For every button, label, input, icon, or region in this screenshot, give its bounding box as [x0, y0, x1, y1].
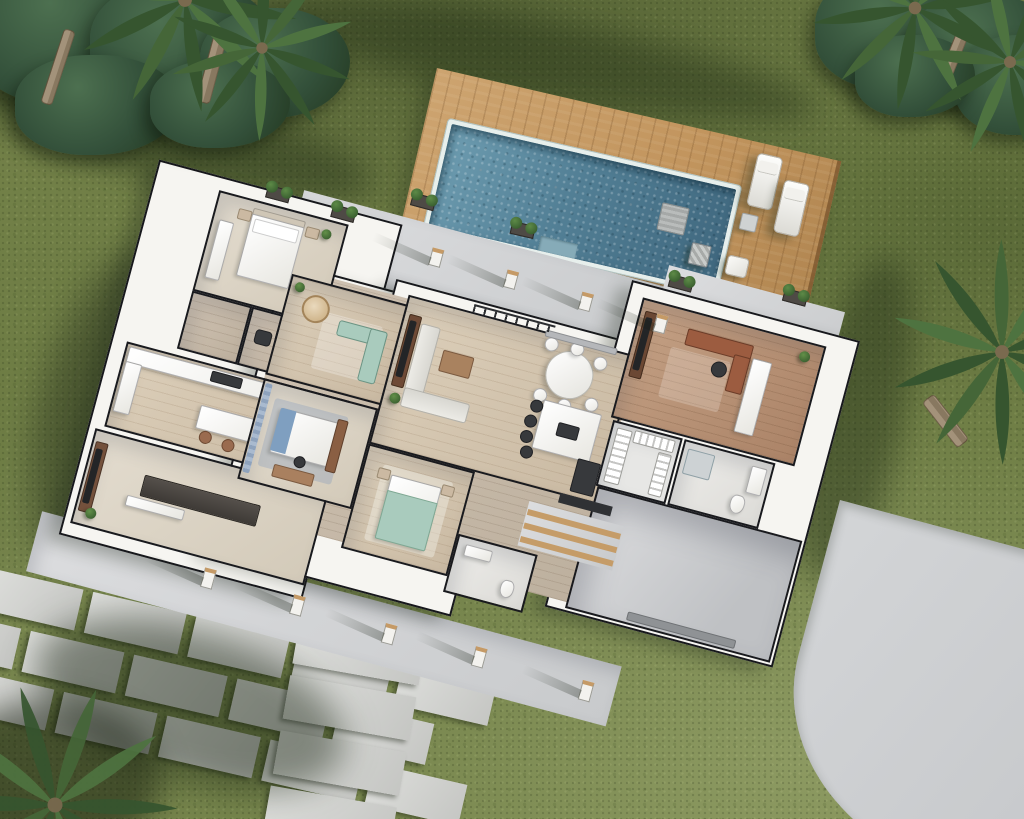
- shelving: [647, 452, 672, 498]
- dining-table-round: [540, 346, 599, 405]
- office-chair: [253, 329, 273, 348]
- toilet: [498, 579, 516, 600]
- rug: [658, 346, 731, 412]
- vanity: [463, 544, 493, 563]
- nightstand: [376, 467, 391, 481]
- aerial-floorplan-render: [0, 0, 1024, 819]
- palm-crown: [905, 0, 1024, 167]
- dining-chair: [592, 355, 609, 372]
- bar-stool: [220, 438, 236, 454]
- deck-pouf: [724, 254, 750, 278]
- sun-lounger: [746, 152, 783, 210]
- corner-fan-plant: [0, 675, 185, 819]
- palm-crown: [162, 0, 362, 148]
- plant: [294, 281, 306, 293]
- coffee-table: [438, 350, 475, 380]
- deck-side-table: [739, 212, 759, 232]
- sun-lounger: [773, 179, 810, 237]
- plant: [84, 507, 97, 520]
- plant: [320, 228, 332, 240]
- vanity: [745, 465, 768, 496]
- palm-crown-right: [882, 232, 1024, 472]
- toilet: [727, 493, 746, 515]
- sofa-l-horizontal: [400, 387, 471, 424]
- plant: [798, 350, 811, 363]
- nightstand: [304, 226, 320, 240]
- long-table: [139, 475, 261, 527]
- bench-sofa: [204, 219, 234, 281]
- paver: [273, 730, 407, 796]
- shower: [682, 448, 716, 480]
- nightstand: [237, 208, 253, 222]
